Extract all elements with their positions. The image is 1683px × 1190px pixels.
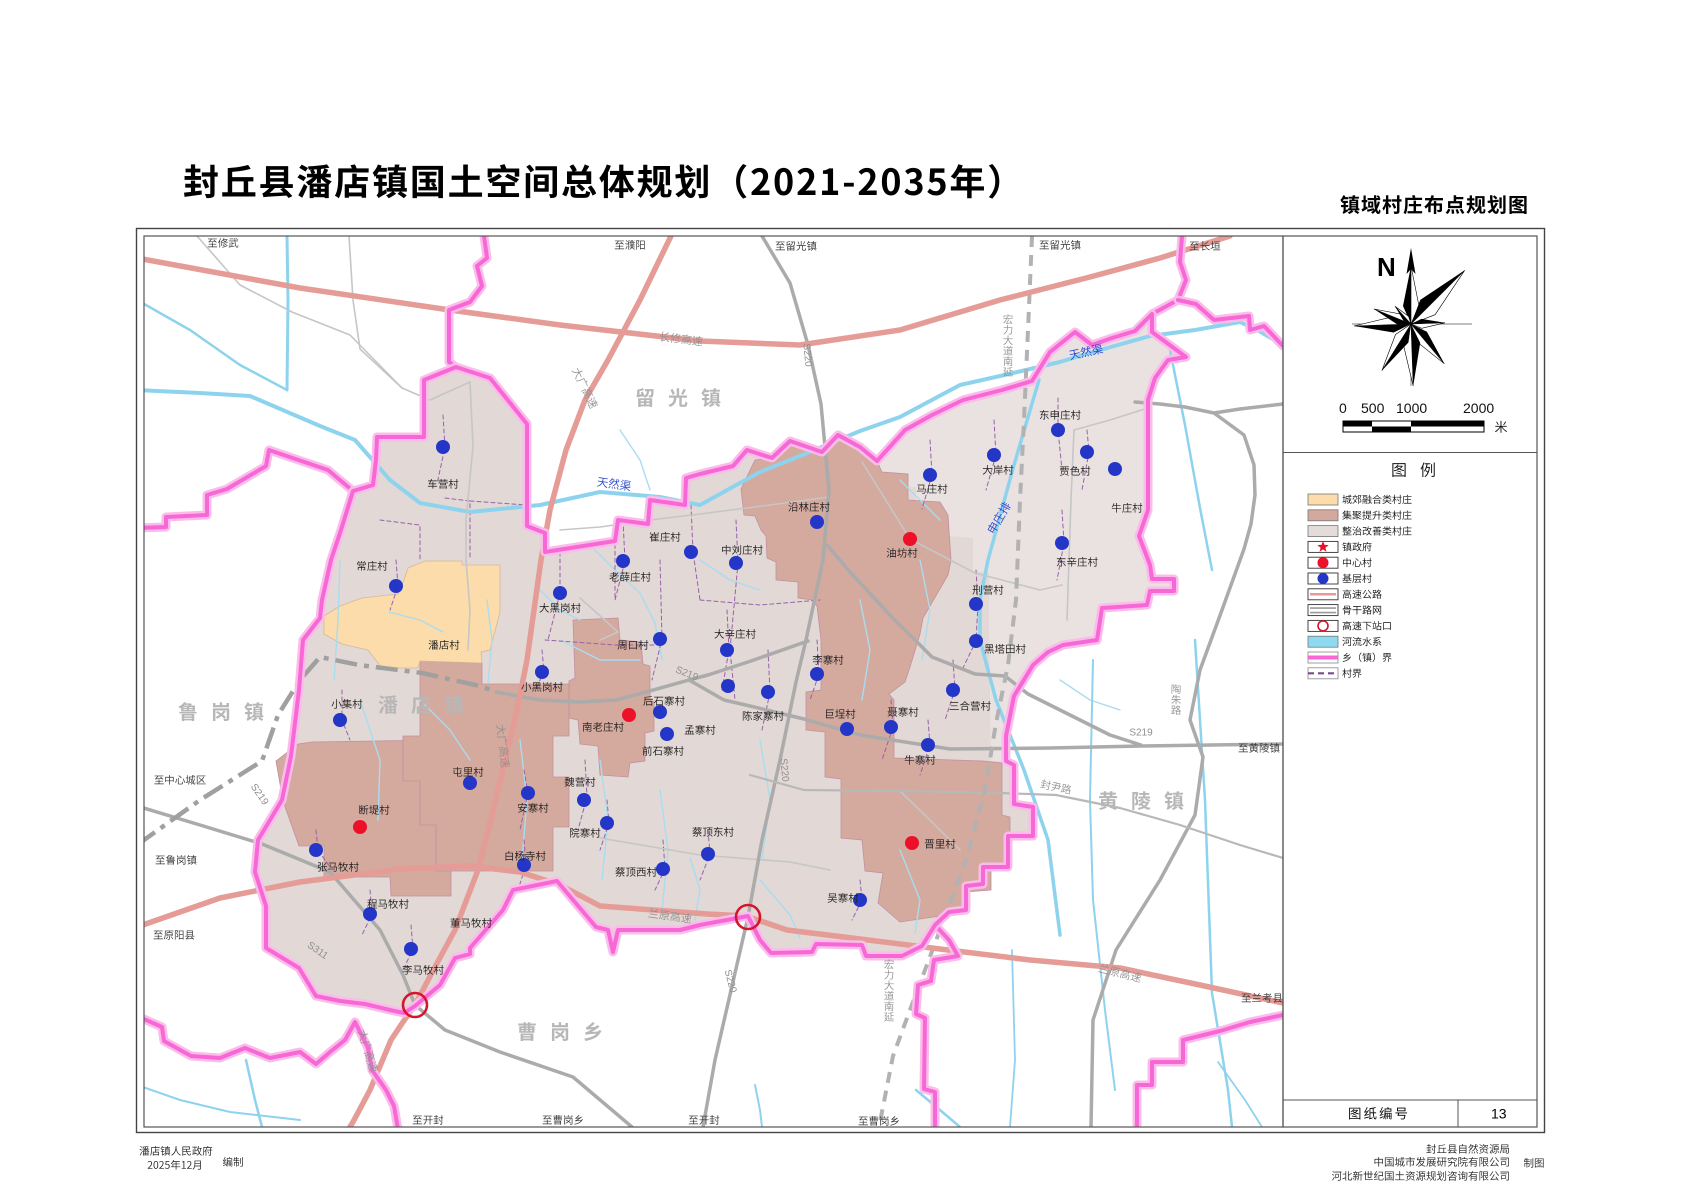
- svg-text:13: 13: [1491, 1106, 1507, 1122]
- svg-text:S219: S219: [1129, 728, 1153, 739]
- svg-text:0: 0: [1339, 400, 1347, 416]
- svg-text:S220: S220: [800, 343, 813, 368]
- svg-text:N: N: [1377, 252, 1396, 282]
- svg-text:S220: S220: [777, 758, 790, 783]
- svg-text:1000: 1000: [1396, 400, 1427, 416]
- svg-text:500: 500: [1361, 400, 1385, 416]
- svg-text:2000: 2000: [1463, 400, 1494, 416]
